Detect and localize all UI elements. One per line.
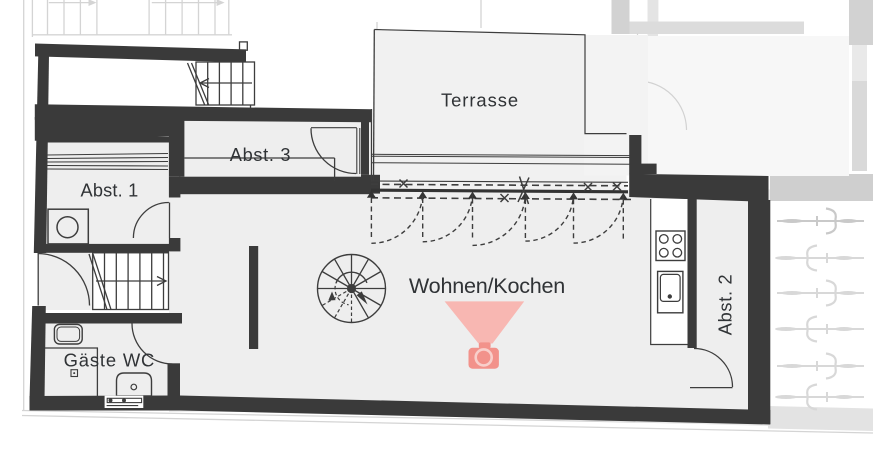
svg-text:Gäste WC: Gäste WC [64, 350, 156, 371]
svg-text:Wohnen/Kochen: Wohnen/Kochen [409, 273, 565, 298]
svg-text:Abst. 2: Abst. 2 [716, 274, 736, 336]
svg-text:Abst. 1: Abst. 1 [80, 181, 138, 201]
svg-text:Terrasse: Terrasse [441, 89, 519, 110]
svg-text:Abst. 3: Abst. 3 [230, 145, 292, 165]
